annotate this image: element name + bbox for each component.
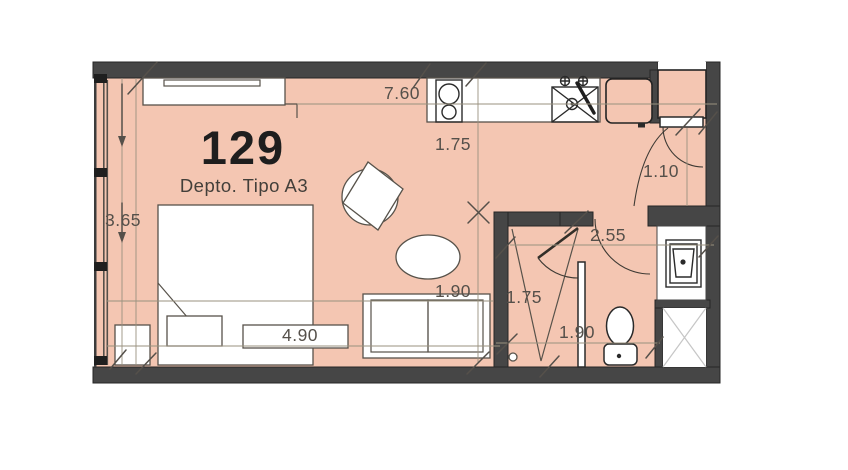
toilet-icon [604, 307, 637, 365]
closet-detail-dot [509, 353, 517, 361]
closet-divider-wall [578, 262, 585, 367]
dim-sofa-width: 1.90 [435, 281, 471, 301]
dim-overall-width: 7.60 [384, 83, 420, 103]
top-wall [93, 62, 658, 78]
dim-bathroom-width: 1.90 [559, 322, 595, 342]
bathroom-top-wall [648, 206, 720, 226]
window-mullion [94, 262, 107, 271]
floor-plan-canvas: 129 Depto. Tipo A3 7.60 1.75 3.65 4.90 1… [0, 0, 848, 470]
coffee-table [396, 235, 460, 279]
shower-left-wall [655, 300, 663, 367]
dim-closet-depth: 1.75 [506, 287, 542, 307]
window-mullion [94, 168, 107, 177]
entry-door-leaf [660, 117, 703, 127]
bed-side-table [115, 325, 150, 365]
dim-kitchen-depth: 1.75 [435, 134, 471, 154]
dim-window-length: 3.65 [105, 210, 141, 230]
unit-type-label: Depto. Tipo A3 [180, 175, 308, 196]
shower-top-wall [655, 300, 710, 308]
dim-bedroom-width: 4.90 [282, 325, 318, 345]
bottom-wall [93, 367, 720, 383]
refrigerator-icon [606, 79, 652, 128]
floor-plan-page: 129 Depto. Tipo A3 7.60 1.75 3.65 4.90 1… [0, 0, 848, 470]
window-mullion [94, 356, 107, 365]
dim-bath-zone-width: 2.55 [590, 225, 626, 245]
sofa [363, 294, 490, 358]
unit-number: 129 [201, 121, 285, 174]
window-mullion [94, 74, 107, 83]
bathroom-door-jamb-wall [560, 212, 593, 226]
dim-entry-width: 1.10 [643, 161, 679, 181]
shower [663, 308, 706, 367]
kitchen [427, 77, 652, 128]
